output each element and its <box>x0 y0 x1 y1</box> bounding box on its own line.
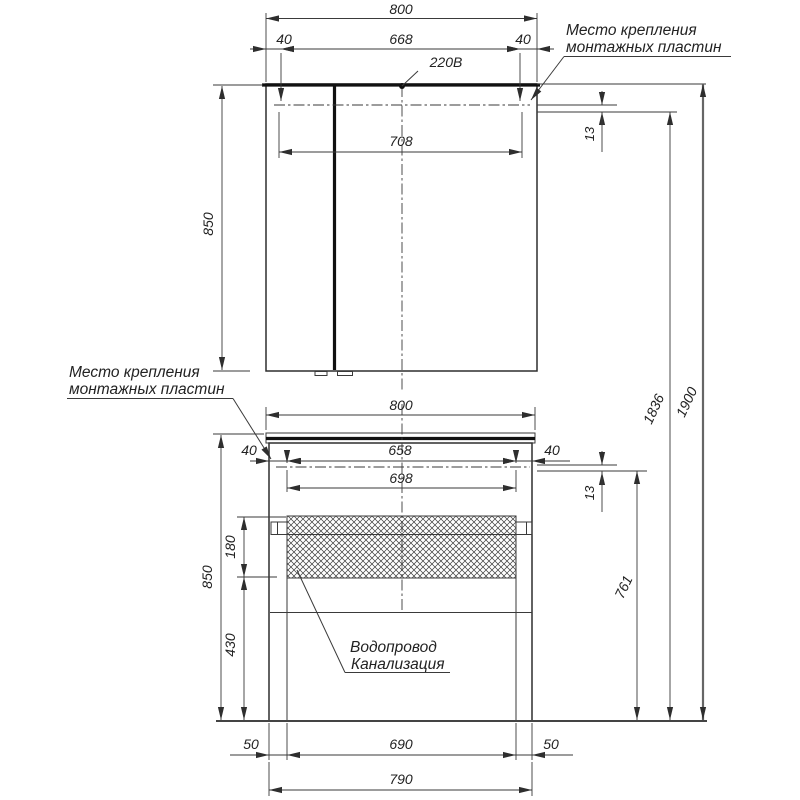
dim-708: 708 <box>389 133 413 149</box>
dim-40-left-upper: 40 <box>276 31 292 47</box>
dim-13-upper: 13 <box>582 126 597 141</box>
leader-arrow <box>531 57 564 101</box>
dim-658: 658 <box>388 442 412 458</box>
dim-698: 698 <box>389 470 413 486</box>
installation-drawing: 220В 800 40 668 40 708 850 <box>0 0 800 800</box>
dim-1836: 1836 <box>640 391 668 426</box>
plumbing-note: Водопровод Канализация <box>297 570 450 673</box>
dim-761: 761 <box>611 573 635 601</box>
dim-850-lower: 850 <box>199 565 215 589</box>
dim-50-left: 50 <box>243 736 259 752</box>
dim-800-lower: 800 <box>389 397 413 413</box>
mirror-cabinet-outline <box>266 84 537 371</box>
mount-note-top-line2: монтажных пластин <box>566 39 722 56</box>
dim-690: 690 <box>389 736 413 752</box>
dim-40-right-upper: 40 <box>515 31 531 47</box>
mount-note-top-line1: Место крепления <box>566 22 697 39</box>
dim-850-upper: 850 <box>200 212 216 236</box>
mirror-cabinet: 220В <box>262 54 540 392</box>
dim-1900: 1900 <box>673 384 701 419</box>
overall-dimensions: 1836 1900 <box>537 84 706 720</box>
dim-50-right: 50 <box>543 736 559 752</box>
door-handle-left <box>315 372 327 376</box>
base-dimensions: 50 690 50 790 <box>230 723 573 796</box>
mount-note-top: Место крепления монтажных пластин <box>531 22 731 100</box>
dim-40-left-lower: 40 <box>241 442 257 458</box>
mount-note-left-line2: монтажных пластин <box>69 381 225 398</box>
dim-668: 668 <box>389 31 413 47</box>
mounting-plate-left <box>271 522 287 535</box>
mount-note-left-line1: Место крепления <box>69 364 200 381</box>
dim-13-lower: 13 <box>582 485 597 500</box>
dim-40-right-lower: 40 <box>544 442 560 458</box>
door-handle-right <box>338 372 353 376</box>
leader-line <box>297 570 345 673</box>
power-label: 220В <box>429 54 463 70</box>
dim-430: 430 <box>222 633 238 657</box>
plumbing-note-sewage: Канализация <box>351 656 445 673</box>
dim-180: 180 <box>222 535 238 559</box>
plumbing-access-hatch <box>287 516 516 578</box>
dim-800-upper: 800 <box>389 1 413 17</box>
plumbing-note-water: Водопровод <box>350 639 437 656</box>
dim-790: 790 <box>389 771 413 787</box>
mounting-plate-right <box>516 522 532 535</box>
